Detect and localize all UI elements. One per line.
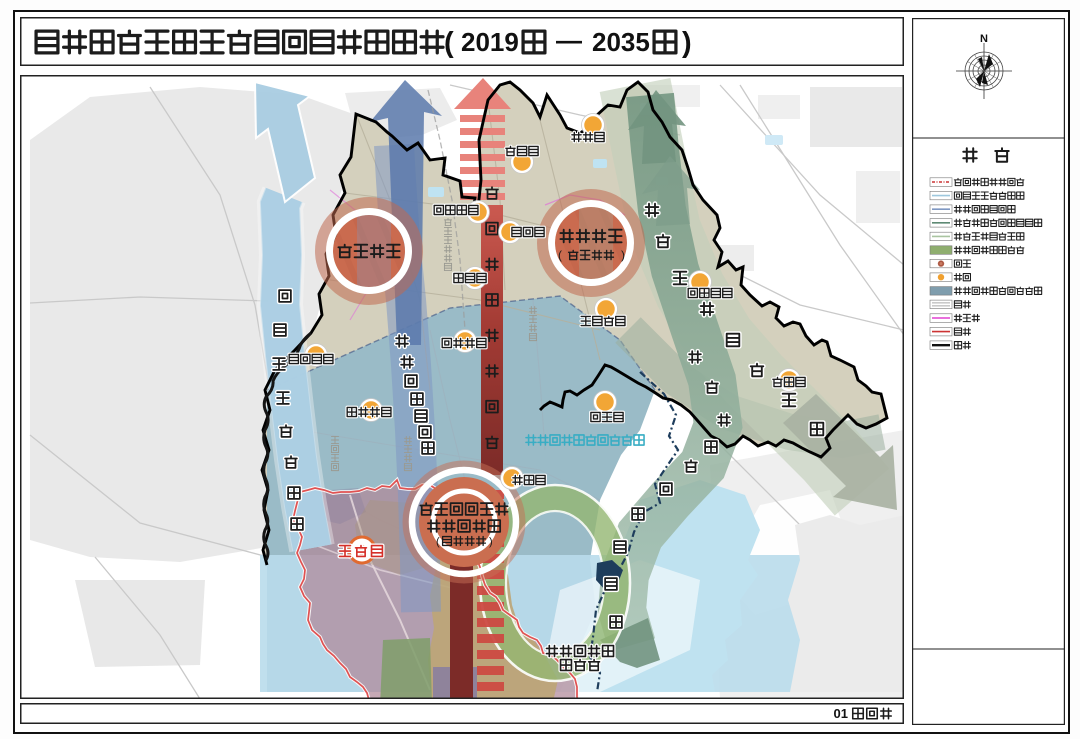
svg-text:—: — [556, 25, 582, 55]
svg-text:2019: 2019 [461, 27, 519, 57]
svg-text:01: 01 [834, 706, 848, 721]
svg-text:): ) [489, 536, 493, 548]
svg-text:(: ( [558, 248, 562, 262]
svg-text:): ) [682, 27, 692, 59]
svg-text:): ) [621, 248, 625, 262]
svg-text:N: N [980, 33, 988, 45]
svg-text:2035: 2035 [592, 27, 650, 57]
svg-text:(: ( [444, 27, 454, 59]
svg-text:(: ( [436, 536, 440, 548]
